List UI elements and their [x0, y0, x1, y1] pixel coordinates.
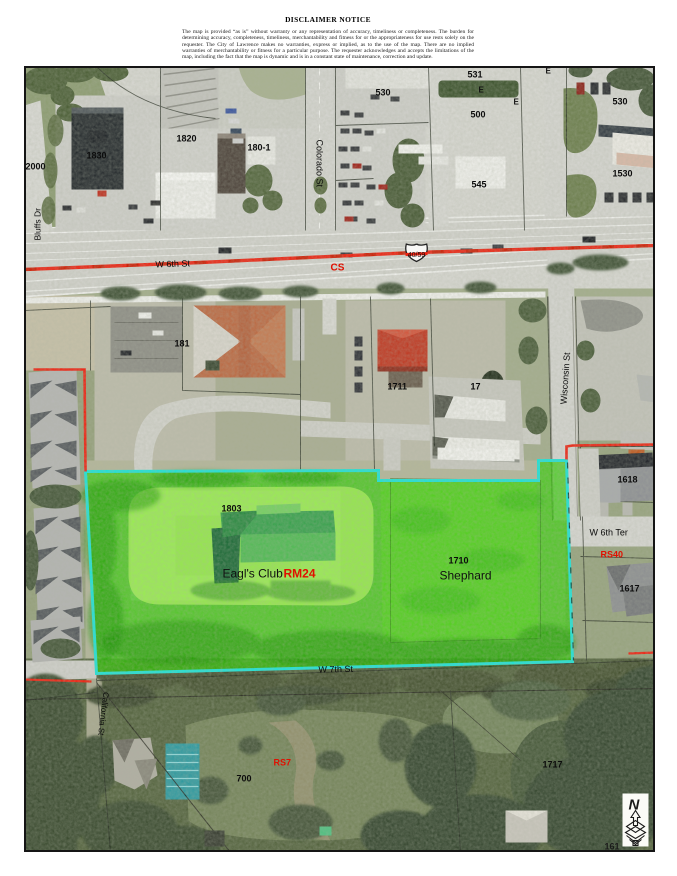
svg-text:1830: 1830: [87, 151, 107, 161]
svg-text:RM24: RM24: [284, 567, 316, 581]
svg-text:N: N: [629, 797, 641, 814]
svg-text:RS40: RS40: [601, 550, 624, 560]
svg-text:W 7th St: W 7th St: [318, 664, 353, 675]
svg-text:531: 531: [468, 70, 483, 80]
svg-text:700: 700: [237, 774, 252, 784]
svg-text:1618: 1618: [618, 475, 638, 485]
svg-text:1820: 1820: [177, 134, 197, 144]
svg-text:1711: 1711: [388, 382, 408, 392]
svg-text:161: 161: [605, 842, 620, 852]
svg-text:1617: 1617: [620, 584, 640, 594]
svg-text:W 6th St: W 6th St: [155, 258, 190, 269]
svg-text:Shephard: Shephard: [440, 569, 492, 583]
svg-text:2000: 2000: [26, 162, 46, 172]
svg-text:500: 500: [471, 110, 486, 120]
svg-text:E: E: [514, 98, 520, 107]
svg-text:530: 530: [376, 88, 391, 98]
svg-text:W 6th Ter: W 6th Ter: [590, 528, 628, 538]
svg-text:545: 545: [472, 180, 487, 190]
svg-text:1710: 1710: [449, 556, 469, 566]
svg-text:1803: 1803: [222, 504, 242, 514]
svg-text:CS: CS: [331, 263, 345, 274]
svg-text:17: 17: [471, 382, 481, 392]
svg-text:1717: 1717: [543, 760, 563, 770]
svg-text:E: E: [479, 86, 485, 95]
svg-text:180-1: 180-1: [248, 143, 271, 153]
svg-text:1530: 1530: [613, 169, 633, 179]
svg-text:181: 181: [175, 339, 190, 349]
svg-text:RS7: RS7: [274, 758, 292, 768]
svg-text:40/59: 40/59: [408, 252, 426, 259]
svg-text:530: 530: [613, 97, 628, 107]
svg-text:Bluffs Dr: Bluffs Dr: [33, 208, 43, 241]
svg-text:Colorado St: Colorado St: [315, 140, 325, 188]
svg-text:Eagl's Club: Eagl's Club: [223, 567, 284, 581]
svg-text:E: E: [546, 68, 552, 76]
